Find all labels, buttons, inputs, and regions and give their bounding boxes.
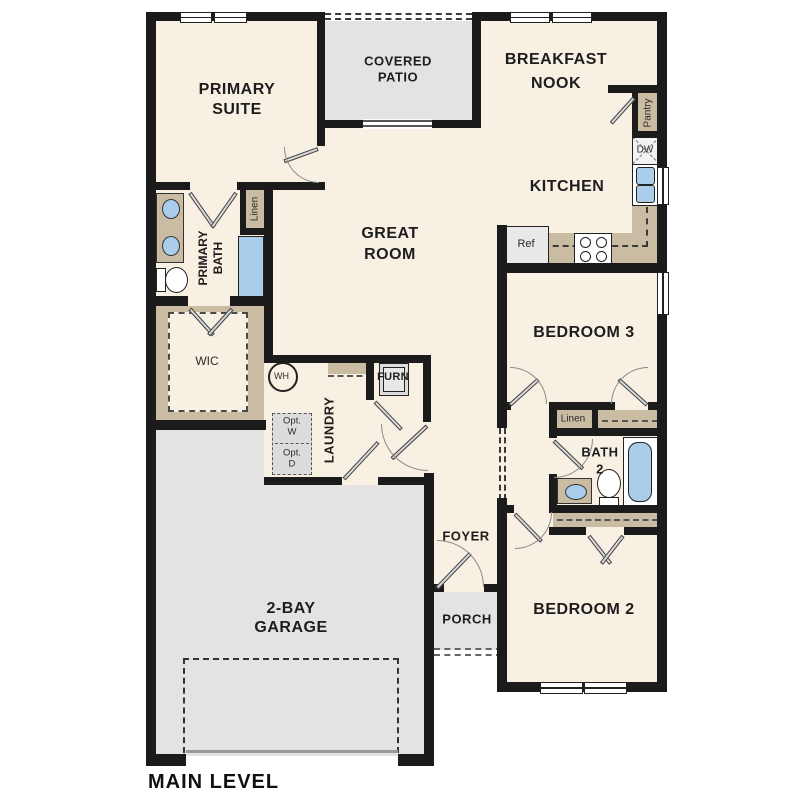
label-refrigerator: Ref <box>517 238 534 250</box>
window <box>214 12 247 23</box>
label-bedroom2: BEDROOM 2 <box>533 601 634 619</box>
label-pantry: Pantry <box>643 99 654 128</box>
kitchen-counter-right <box>632 203 657 233</box>
window <box>657 272 669 315</box>
label-great-room: GREAT <box>361 225 418 243</box>
label-opt-washer: Opt. W <box>283 416 301 439</box>
wall <box>398 754 434 766</box>
label-laundry: LAUNDRY <box>322 397 337 464</box>
wall <box>472 21 481 128</box>
patio-edge-dash-2 <box>325 18 472 20</box>
label-foyer: FOYER <box>442 529 489 544</box>
wall <box>549 428 667 436</box>
wall <box>549 402 615 410</box>
label-covered-patio-2: PATIO <box>378 70 418 85</box>
wall <box>146 182 190 190</box>
wall <box>549 505 667 513</box>
window <box>540 682 583 694</box>
wall <box>549 527 586 535</box>
wall <box>264 182 273 362</box>
label-water-heater: WH <box>274 371 289 381</box>
wall <box>230 296 266 306</box>
kitchen-sink-bowl-1 <box>636 167 655 185</box>
wall <box>264 477 342 485</box>
cabinet-dash-line-vert <box>646 207 648 247</box>
label-wic: WIC <box>195 354 218 368</box>
label-covered-patio: COVERED <box>364 54 432 69</box>
window <box>510 12 550 23</box>
label-primary-suite: PRIMARY <box>199 81 276 99</box>
wall <box>317 120 363 128</box>
label-great-room-2: ROOM <box>364 246 416 264</box>
patio-edge-dash-1 <box>325 13 472 15</box>
bath2-sink <box>565 484 587 500</box>
wall <box>624 527 667 535</box>
bedroom3-closet-strip <box>598 410 662 428</box>
wall <box>146 420 266 430</box>
label-primary-bath: PRIMARY BATH <box>196 231 226 286</box>
wall <box>146 12 156 766</box>
plan-title: MAIN LEVEL <box>148 771 279 794</box>
garage-door-track <box>183 658 399 753</box>
wall <box>240 228 266 235</box>
primary-shower <box>238 236 264 300</box>
wall <box>497 505 514 513</box>
primary-sink-2 <box>162 236 180 256</box>
wall <box>648 402 667 410</box>
porch-edge-dash-2 <box>434 654 502 656</box>
window <box>584 682 627 694</box>
bedroom2-closet-rod <box>557 519 658 521</box>
wall <box>608 85 657 93</box>
wall <box>497 225 507 428</box>
garage-door-line <box>186 750 398 753</box>
wall <box>424 473 434 766</box>
primary-toilet <box>156 266 190 293</box>
bath2-tub <box>628 442 652 502</box>
window <box>657 167 669 205</box>
label-bath2-2: 2 <box>596 462 604 477</box>
label-bedroom3: BEDROOM 3 <box>533 324 634 342</box>
label-dishwasher: DW <box>637 145 654 156</box>
patio-slider-line-1 <box>363 120 432 122</box>
porch-edge-dash-1 <box>434 648 502 650</box>
wall <box>237 182 325 190</box>
label-linen-hall: Linen <box>561 414 585 425</box>
wall <box>497 498 507 690</box>
label-furnace: FURN <box>377 371 409 383</box>
wall <box>264 355 431 363</box>
wall <box>657 12 667 692</box>
wall <box>378 477 434 485</box>
label-breakfast-nook-2: NOOK <box>531 75 581 93</box>
cased-opening-dash-1 <box>499 428 501 500</box>
label-breakfast-nook: BREAKFAST <box>505 51 607 69</box>
patio-slider-line-2 <box>363 125 432 127</box>
primary-sink-1 <box>162 199 180 219</box>
wall <box>497 263 667 273</box>
window <box>552 12 592 23</box>
bedroom3-closet-rod <box>602 420 658 422</box>
window <box>180 12 212 23</box>
stove <box>574 233 612 265</box>
label-porch: PORCH <box>442 612 491 627</box>
wall <box>423 355 431 422</box>
label-garage-2: GARAGE <box>254 619 327 637</box>
wall <box>240 190 246 232</box>
cased-opening-dash-2 <box>504 428 506 500</box>
wall <box>366 363 374 400</box>
label-primary-suite-2: SUITE <box>212 101 262 119</box>
label-linen-bath: Linen <box>250 197 261 221</box>
wall <box>146 754 186 766</box>
wall <box>632 131 657 138</box>
label-bath2: BATH <box>581 445 618 460</box>
label-kitchen: KITCHEN <box>530 178 605 196</box>
kitchen-sink-bowl-2 <box>636 185 655 203</box>
wall <box>146 296 188 306</box>
wall <box>432 120 481 128</box>
label-opt-dryer: Opt. D <box>283 448 301 471</box>
label-garage: 2-BAY <box>266 600 315 618</box>
floor-plan: PRIMARY SUITE COVERED PATIO BREAKFAST NO… <box>0 0 810 810</box>
